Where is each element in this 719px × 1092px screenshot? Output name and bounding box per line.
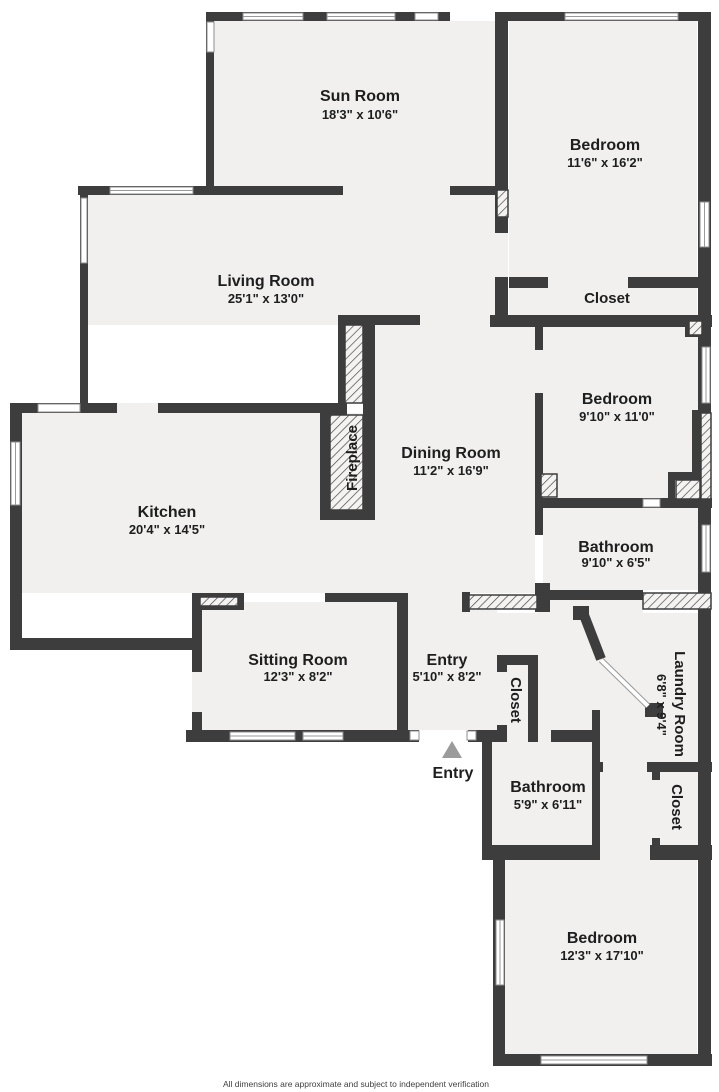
room-label-entry: Entry (427, 652, 468, 669)
room-dims-dining-room: 11'2" x 16'9" (413, 463, 489, 478)
room-label-bathroom-low: Bathroom (510, 779, 586, 796)
room-dims-sun-room: 18'3" x 10'6" (322, 107, 398, 122)
room-dims-laundry: 6'8" x 9'4" (654, 674, 669, 736)
hatch-bedroom-mid-corner (689, 321, 702, 335)
room-label-kitchen: Kitchen (138, 504, 197, 521)
room-dims-entry: 5'10" x 8'2" (412, 669, 481, 684)
door-hatch-laundry-top (643, 593, 711, 609)
room-label-sitting-room: Sitting Room (248, 652, 348, 669)
room-dims-bathroom-mid: 9'10" x 6'5" (581, 555, 650, 570)
room-label-living-room: Living Room (218, 273, 315, 290)
footer-disclaimer: All dimensions are approximate and subje… (223, 1079, 489, 1089)
floor-hall-low (597, 742, 652, 848)
hatch-bedroom-mid-nook (676, 480, 700, 499)
floor-plan-page: Sun Room 18'3" x 10'6" Bedroom 11'6" x 1… (0, 0, 719, 1092)
room-label-bathroom-mid: Bathroom (578, 539, 654, 556)
window (415, 13, 438, 20)
room-label-bedroom-mid: Bedroom (582, 391, 652, 408)
room-dims-bedroom-mid: 9'10" x 11'0" (579, 409, 655, 424)
room-dims-bathroom-low: 5'9" x 6'11" (514, 797, 582, 812)
room-label-closet-top: Closet (584, 290, 630, 307)
door-hatch-sunroom-bedroom (497, 190, 508, 217)
room-floor-kitchen (22, 413, 535, 593)
door-jamb (410, 731, 419, 740)
room-label-bedroom-bottom: Bedroom (567, 930, 637, 947)
room-label-dining-room: Dining Room (401, 445, 501, 462)
door-hatch-kitchen-sitting (200, 597, 238, 606)
window (643, 499, 660, 507)
room-dims-kitchen: 20'4" x 14'5" (129, 522, 205, 537)
fireplace-hatch-upper (345, 325, 363, 403)
window (207, 22, 214, 52)
room-label-closet-low: Closet (668, 784, 685, 830)
door-hatch-entry-dining (469, 595, 537, 609)
room-label-laundry: Laundry Room (671, 651, 688, 757)
floor-passage-dining-entry (408, 593, 468, 610)
room-label-fireplace: Fireplace (344, 425, 361, 491)
door-hatch-bedroom-mid (541, 474, 557, 497)
room-dims-bedroom-top: 11'6" x 16'2" (567, 155, 643, 170)
window (81, 198, 87, 263)
window (38, 404, 80, 412)
floor-hall-strip (538, 600, 643, 613)
entry-marker-label: Entry (433, 765, 474, 782)
room-dims-living-room: 25'1" x 13'0" (228, 291, 304, 306)
room-dims-sitting-room: 12'3" x 8'2" (263, 669, 332, 684)
floor-plan-drawing: Sun Room 18'3" x 10'6" Bedroom 11'6" x 1… (0, 0, 719, 1092)
door-jamb (467, 731, 476, 740)
hatch-bedroom-mid-right (701, 413, 711, 499)
room-label-bedroom-top: Bedroom (570, 137, 640, 154)
room-label-closet-entry: Closet (507, 677, 524, 723)
room-label-sun-room: Sun Room (320, 88, 400, 105)
room-dims-bedroom-bottom: 12'3" x 17'10" (560, 948, 644, 963)
